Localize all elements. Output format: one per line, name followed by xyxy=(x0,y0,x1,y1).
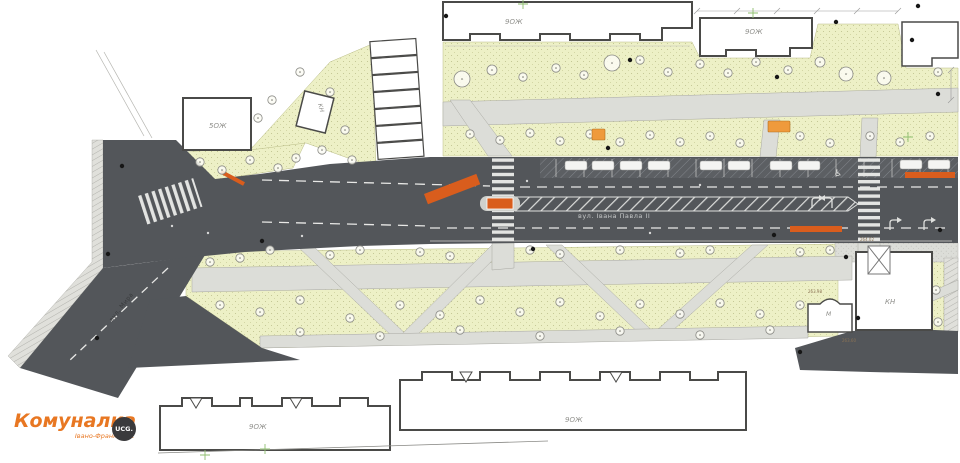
tree-icon xyxy=(299,331,301,333)
building-label: М xyxy=(826,311,832,318)
tree-icon xyxy=(599,315,601,317)
building-label: 9ОЖ xyxy=(249,423,267,431)
tree-icon xyxy=(559,253,561,255)
tree-icon xyxy=(719,302,721,304)
tree-icon xyxy=(679,252,681,254)
survey-point xyxy=(910,38,914,42)
tree-icon xyxy=(499,139,501,141)
survey-point xyxy=(916,4,920,8)
ucg-badge: UCG. xyxy=(112,417,136,441)
survey-point xyxy=(606,146,610,150)
tree-icon xyxy=(739,142,741,144)
building-right-block xyxy=(856,252,932,330)
tree-icon xyxy=(619,141,621,143)
survey-point xyxy=(772,233,776,237)
kiosk-orange xyxy=(592,129,605,140)
pavilion-orange xyxy=(768,121,790,132)
tree-icon xyxy=(699,63,701,65)
survey-point xyxy=(936,92,940,96)
survey-point xyxy=(775,75,779,79)
tree-icon xyxy=(321,149,323,151)
parked-car xyxy=(700,161,722,170)
tree-icon xyxy=(935,289,937,291)
building-label: 9ОЖ xyxy=(505,18,523,26)
tree-icon xyxy=(679,313,681,315)
tree-icon xyxy=(209,261,211,263)
elevation-mark: 264.02 xyxy=(860,237,874,242)
building-label: 9ОЖ xyxy=(745,28,763,36)
tree-icon xyxy=(759,313,761,315)
tree-icon xyxy=(559,140,561,142)
survey-point xyxy=(120,164,124,168)
tree-icon xyxy=(769,329,771,331)
tree-icon xyxy=(221,169,223,171)
tree-icon xyxy=(479,299,481,301)
building-label: 9ОЖ xyxy=(565,416,583,424)
survey-point xyxy=(844,255,848,259)
tree-icon xyxy=(459,329,461,331)
site-plan-canvas: ♿ xyxy=(0,0,960,463)
tree-icon xyxy=(351,159,353,161)
tree-icon xyxy=(829,249,831,251)
building-top-center xyxy=(443,2,692,40)
tree-icon xyxy=(539,335,541,337)
tree-icon xyxy=(709,135,711,137)
survey-point xyxy=(106,252,110,256)
tree-icon xyxy=(699,334,701,336)
median-chevron xyxy=(506,197,858,211)
tree-icon xyxy=(529,132,531,134)
parked-car xyxy=(648,161,670,170)
tree-icon xyxy=(555,67,557,69)
survey-point xyxy=(628,58,632,62)
tree-icon xyxy=(295,157,297,159)
tree-icon xyxy=(269,249,271,251)
handicap-parking-icon: ♿ xyxy=(834,169,842,179)
tree-icon xyxy=(344,129,346,131)
parked-car xyxy=(928,160,950,169)
building-top-right xyxy=(700,18,812,56)
tree-icon xyxy=(299,71,301,73)
tree-icon xyxy=(819,61,821,63)
tree-icon xyxy=(799,251,801,253)
tree-icon xyxy=(679,141,681,143)
tree-icon xyxy=(639,59,641,61)
tree-icon xyxy=(519,311,521,313)
tree-icon xyxy=(461,78,463,80)
parked-car xyxy=(900,160,922,169)
elevation-mark: 263.98 xyxy=(808,289,822,294)
tree-icon xyxy=(787,69,789,71)
tree-icon xyxy=(329,91,331,93)
survey-point xyxy=(444,14,448,18)
tree-icon xyxy=(799,135,801,137)
tree-icon xyxy=(399,304,401,306)
tree-icon xyxy=(883,77,885,79)
survey-point xyxy=(531,247,535,251)
tree-icon xyxy=(379,335,381,337)
tree-icon xyxy=(271,99,273,101)
tree-icon xyxy=(619,249,621,251)
tree-icon xyxy=(359,249,361,251)
tree-icon xyxy=(439,314,441,316)
survey-point xyxy=(95,336,99,340)
tree-icon xyxy=(845,73,847,75)
tree-icon xyxy=(589,133,591,135)
survey-point xyxy=(938,228,942,232)
tree-icon xyxy=(329,254,331,256)
tree-icon xyxy=(257,117,259,119)
survey-point xyxy=(856,316,860,320)
substation-box xyxy=(868,246,890,274)
tree-icon xyxy=(199,161,201,163)
tree-icon xyxy=(419,251,421,253)
parked-car xyxy=(798,161,820,170)
survey-point xyxy=(260,239,264,243)
tree-icon xyxy=(299,299,301,301)
parked-car xyxy=(620,161,642,170)
tree-icon xyxy=(277,167,279,169)
tree-icon xyxy=(611,62,613,64)
tree-icon xyxy=(799,304,801,306)
tree-icon xyxy=(937,71,939,73)
tree-icon xyxy=(219,304,221,306)
tree-icon xyxy=(583,74,585,76)
tree-icon xyxy=(639,303,641,305)
tree-icon xyxy=(529,249,531,251)
survey-point xyxy=(798,350,802,354)
tree-icon xyxy=(667,71,669,73)
tree-icon xyxy=(491,69,493,71)
parked-car xyxy=(728,161,750,170)
tree-icon xyxy=(869,135,871,137)
tree-icon xyxy=(937,321,939,323)
tree-icon xyxy=(755,61,757,63)
survey-point xyxy=(834,20,838,24)
tree-icon xyxy=(259,311,261,313)
street-label-main: вул. Івана Павла II xyxy=(578,212,650,220)
tree-icon xyxy=(899,141,901,143)
tree-icon xyxy=(829,142,831,144)
tree-icon xyxy=(929,135,931,137)
tree-icon xyxy=(709,249,711,251)
site-plan-drawing: ♿ xyxy=(0,0,960,463)
garage-row xyxy=(370,38,424,159)
tree-icon xyxy=(469,133,471,135)
tree-icon xyxy=(522,76,524,78)
zebra-crossing-east xyxy=(858,158,880,242)
refuge-island-marking xyxy=(487,198,513,209)
grid-cross xyxy=(748,8,758,18)
building-far-right xyxy=(902,22,958,66)
parked-car xyxy=(592,161,614,170)
tree-icon xyxy=(649,134,651,136)
building-label: 5ОЖ xyxy=(209,122,227,130)
tree-icon xyxy=(559,301,561,303)
tree-icon xyxy=(249,159,251,161)
tree-icon xyxy=(239,257,241,259)
parked-car xyxy=(770,161,792,170)
tree-icon xyxy=(619,330,621,332)
elevation-mark: 263.60 xyxy=(842,338,856,343)
tree-icon xyxy=(727,72,729,74)
tree-icon xyxy=(449,255,451,257)
parked-car xyxy=(565,161,587,170)
building-label: КН xyxy=(885,298,896,306)
tree-icon xyxy=(349,317,351,319)
